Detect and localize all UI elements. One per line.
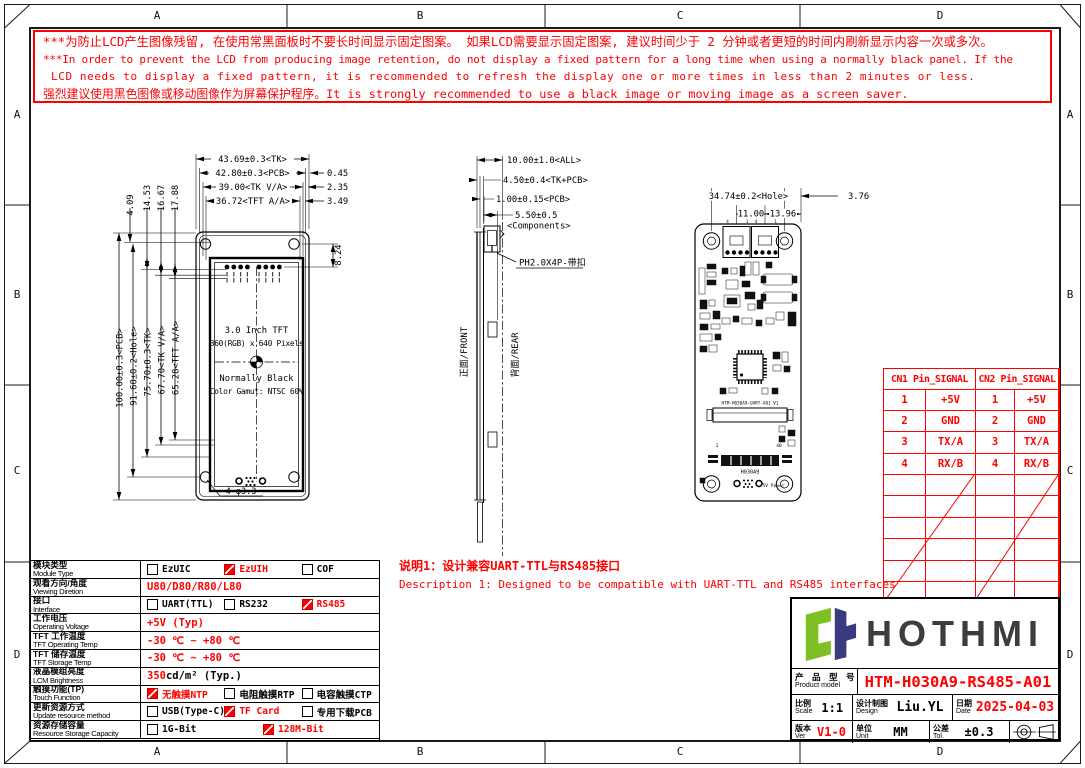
pin-table-cell	[1015, 518, 1059, 540]
zone-col-c-top: C	[670, 9, 690, 22]
checkbox-label: 1G-Bit	[162, 724, 196, 735]
pin-table-cell	[884, 539, 926, 561]
pin-table-cell: 2	[884, 411, 926, 432]
pin-table-cell	[1015, 561, 1059, 583]
pcb-silkscreen-label: HTM-H030A9-UART-A01 V1	[722, 401, 779, 407]
connector-type-label: PH2.0X4P-带扣	[519, 257, 586, 269]
product-label-en: Product model	[795, 682, 858, 690]
checkbox-label: EzUIH	[239, 564, 268, 575]
checkbox-label: 无触摸NTP	[162, 687, 208, 701]
zone-col-d-bottom: D	[930, 745, 950, 758]
dim-hole-span: 34.74±0.2<Hole>	[709, 192, 788, 202]
spec-row-value: EzUICEzUIHCOF	[141, 561, 379, 579]
spec-row-label: 接口Interface	[31, 597, 141, 615]
spec-row-value: 无触摸NTP电阻触摸RTP电容触摸CTP	[141, 686, 379, 704]
pin-table-cell: RX/B	[1015, 454, 1059, 475]
checkbox-checked-icon	[263, 724, 274, 735]
value-red-part: 350	[147, 670, 166, 682]
screen-mode-label: Normally Black	[219, 374, 294, 384]
zone-row-b-left: B	[7, 288, 27, 301]
scale-label-cn: 比例	[795, 699, 813, 708]
dim-small-409: 4.09	[126, 194, 136, 215]
date-value: 2025-04-03	[976, 700, 1054, 715]
checkbox-option: 电容触摸CTP	[302, 687, 379, 701]
warning-line-mixed: 强烈建议使用黑色图像或移动图像作为屏幕保护程序。It is strongly r…	[43, 85, 1042, 103]
zone-row-c-right: C	[1060, 464, 1080, 477]
spec-row-value: 1G-Bit128M-Bit	[141, 721, 379, 739]
pin-table-cell: 2	[976, 411, 1015, 432]
pin4-mark2: 4	[755, 219, 758, 224]
tol-label-cn: 公差	[933, 724, 949, 733]
checkbox-label: 128M-Bit	[278, 724, 324, 735]
pin-table-cell: TX/A	[1015, 432, 1059, 453]
tolerance-value: ±0.3	[965, 725, 994, 739]
note-en: Description 1: Designed to be compatible…	[399, 577, 896, 592]
zone-row-b-right: B	[1060, 288, 1080, 301]
pin-table-cell	[926, 539, 976, 561]
warning-line-en-1: ***In order to prevent the LCD from prod…	[43, 51, 1042, 68]
dim-hole-height: 91.60±0.2<Hole>	[130, 326, 140, 405]
pin-table-cell: RX/B	[926, 454, 976, 475]
checkbox-checked-icon	[302, 599, 313, 610]
zone-row-d-right: D	[1060, 648, 1080, 661]
zone-col-d-top: D	[930, 9, 950, 22]
rear-side-label: 背面/REAR	[509, 332, 521, 378]
pin-table-header: CN1 Pin_SIGNAL	[884, 369, 976, 390]
unit-value: MM	[893, 725, 907, 739]
checkbox-checked-icon	[224, 564, 235, 575]
dim-components-tag: <Components>	[507, 222, 571, 232]
pin-table-cell	[884, 496, 926, 518]
pin1-mark2: 1	[774, 219, 777, 224]
checkbox-option: COF	[302, 564, 379, 575]
rear-bottom-connector	[734, 480, 762, 489]
fpc-pin1-label: 1	[716, 443, 719, 449]
dim-components-thickness: 5.50±0.5	[515, 211, 557, 221]
dim-offset-045: 0.45	[327, 169, 348, 179]
dim-offset-235: 2.35	[327, 183, 348, 193]
pin4-mark: 4	[726, 219, 729, 224]
dim-pcb-width: 42.80±0.3<PCB>	[215, 169, 289, 179]
scale-label-en: Scale	[795, 708, 813, 716]
zone-col-a-bottom: A	[147, 745, 167, 758]
checkbox-option: 电阻触摸RTP	[224, 687, 301, 701]
pin-table-cell	[976, 496, 1015, 518]
checkbox-option: 专用下载PCB	[302, 705, 379, 719]
product-label-cn: 产 品 型 号	[795, 673, 858, 682]
dim-aa-width: 36.72<TFT A/A>	[216, 197, 290, 207]
checkbox-label: RS485	[317, 599, 346, 610]
checkbox-unchecked-icon	[147, 706, 158, 717]
pin-table-cell: +5V	[926, 390, 976, 411]
product-model-value: HTM-H030A9-RS485-A01	[865, 673, 1052, 691]
pad-bar	[708, 455, 792, 466]
pin-table-cell	[976, 539, 1015, 561]
pin-table-cell	[926, 561, 976, 583]
checkbox-label: RS232	[239, 599, 268, 610]
spec-row-value: -30 ℃ ~ +80 ℃	[141, 632, 379, 650]
ver-unit-tol-row: 版本 Ver V1-0 单位 Unit MM 公差 Tol. ±0.3	[792, 721, 1058, 743]
spec-row-label: TFT 工作温度TFT Operating Temp	[31, 632, 141, 650]
dim-all-thickness: 10.00±1.0<ALL>	[507, 156, 581, 166]
center-mark-icon	[251, 356, 263, 368]
note-cn: 说明1：设计兼容UART-TTL与RS485接口	[399, 559, 896, 574]
lcd-retention-warning: ***为防止LCD产生图像残留, 在使用常黑面板时不要长时间显示固定图案。 如果…	[33, 30, 1052, 103]
spec-row-value: 350 cd/m² (Typ.)	[141, 668, 379, 686]
dim-aa-height: 65.28<TFT A/A>	[172, 321, 182, 395]
spec-row-label: TFT 储存温度TFT Storage Temp	[31, 650, 141, 668]
front-bottom-connector	[236, 477, 266, 486]
pin-table-cell	[926, 475, 976, 497]
screen-gamut-label: Color Gamut: NTSC 60%	[210, 387, 304, 396]
dim-824: 8.24	[334, 244, 344, 265]
pin-table-cell	[926, 518, 976, 540]
checkbox-unchecked-icon	[224, 688, 235, 699]
pin-table-cell: 1	[976, 390, 1015, 411]
qfp-chip	[735, 352, 765, 382]
pin-table-cell	[926, 496, 976, 518]
pcb-code-label: H030A9	[741, 470, 760, 476]
warning-line-cn-1: ***为防止LCD产生图像残留, 在使用常黑面板时不要长时间显示固定图案。 如果…	[43, 34, 1042, 51]
dim-tk-height: 75.70±0.3<TK>	[144, 328, 154, 397]
checkbox-label: TF Card	[239, 706, 279, 717]
rear-view: 4 1 4 1	[695, 188, 869, 501]
spec-row-value: USB(Type-C)TF Card专用下载PCB	[141, 703, 379, 721]
pin-table-cell: 3	[884, 432, 926, 453]
spec-table: 模块类型Module TypeEzUICEzUIHCOF观看方向/角度Viewi…	[30, 560, 380, 741]
pin-table-cell	[1015, 539, 1059, 561]
tol-label-en: Tol.	[933, 733, 949, 741]
dim-va-height: 67.70<TK V/A>	[158, 326, 168, 395]
zone-col-b-bottom: B	[410, 745, 430, 758]
screen-size-label: 3.0 Inch TFT	[225, 326, 289, 336]
screen-resolution-label: 360(RGB) x 640 Pixels	[210, 339, 303, 348]
checkbox-unchecked-icon	[302, 688, 313, 699]
pin-table-cell	[976, 561, 1015, 583]
pin-table-cell: TX/A	[926, 432, 976, 453]
spec-row-value: -30 ℃ ~ +80 ℃	[141, 650, 379, 668]
spec-row-label: 观看方向/角度Viewing Diretion	[31, 579, 141, 597]
checkbox-label: EzUIC	[162, 564, 191, 575]
checkbox-option: 无触摸NTP	[141, 687, 224, 701]
pin-table-cell	[976, 475, 1015, 497]
dim-va-width: 39.00<TK V/A>	[219, 183, 288, 193]
front-view: 3.0 Inch TFT 360(RGB) x 640 Pixels Norma…	[113, 154, 348, 500]
design-label-en: Design	[856, 708, 888, 716]
power-silkscreen-label: 5V Power	[763, 483, 785, 489]
dim-1396: 13.96	[770, 210, 796, 220]
checkbox-option: USB(Type-C)	[141, 706, 224, 717]
spec-row-value: +5V (Typ)	[141, 614, 379, 632]
ver-label-cn: 版本	[795, 724, 811, 733]
projection-symbol-icon	[1010, 722, 1058, 742]
warning-line-en-2: LCD needs to display a fixed pattern, it…	[43, 68, 1042, 85]
unit-label-en: Unit	[856, 733, 872, 741]
zone-row-d-left: D	[7, 648, 27, 661]
pin-table-cell: GND	[926, 411, 976, 432]
checkbox-label: 电容触摸CTP	[317, 687, 372, 701]
hothmi-logo-icon	[798, 605, 860, 663]
zone-row-a-right: A	[1060, 108, 1080, 121]
checkbox-option: RS485	[302, 599, 379, 610]
designer-name: Liu.YL	[897, 700, 944, 715]
pin-table-cell	[884, 561, 926, 583]
unit-label-cn: 单位	[856, 724, 872, 733]
checkbox-label: 专用下载PCB	[317, 705, 372, 719]
dim-pcb-height: 100.00±0.3<PCB>	[116, 328, 126, 407]
pin-table-cell	[976, 518, 1015, 540]
dim-pcb-thickness: 1.00±0.15<PCB>	[496, 195, 570, 205]
dim-376: 3.76	[848, 192, 869, 202]
checkbox-label: 电阻触摸RTP	[239, 687, 294, 701]
checkbox-unchecked-icon	[147, 724, 158, 735]
spec-row-label: 更新资源方式Update resource method	[31, 703, 141, 721]
checkbox-option: EzUIH	[224, 564, 301, 575]
checkbox-checked-icon	[224, 706, 235, 717]
zone-row-a-left: A	[7, 108, 27, 121]
product-model-row: 产 品 型 号 Product model HTM-H030A9-RS485-A…	[792, 669, 1058, 695]
checkbox-unchecked-icon	[147, 599, 158, 610]
title-block: HOTHMI 产 品 型 号 Product model HTM-H030A9-…	[790, 597, 1060, 741]
checkbox-label: COF	[317, 564, 334, 575]
checkbox-checked-icon	[147, 688, 158, 699]
pin-table-cell: 4	[976, 454, 1015, 475]
checkbox-unchecked-icon	[224, 599, 235, 610]
pin-table-cell: 1	[884, 390, 926, 411]
scale-value: 1:1	[821, 701, 843, 715]
pin-table-header: CN2 Pin_SIGNAL	[976, 369, 1059, 390]
pin-table-cell: 3	[976, 432, 1015, 453]
dim-small-1788: 17.88	[171, 185, 181, 211]
scale-design-date-row: 比例 Scale 1:1 设计制图 Design Liu.YL 日期 Date …	[792, 695, 1058, 721]
checkbox-unchecked-icon	[147, 564, 158, 575]
dim-offset-349: 3.49	[327, 197, 348, 207]
pin-table-cell	[1015, 475, 1059, 497]
pin-signal-table: CN1 Pin_SIGNALCN2 Pin_SIGNAL1+5V1+5V2GND…	[883, 368, 1060, 604]
design-label-cn: 设计制图	[856, 699, 888, 708]
date-label-cn: 日期	[956, 699, 972, 708]
design-notes: 说明1：设计兼容UART-TTL与RS485接口 Description 1: …	[399, 559, 896, 592]
spec-row-label: 液晶模组亮度LCM Brightness	[31, 668, 141, 686]
hole-dimension-label: 4-φ3.3	[226, 487, 257, 497]
checkbox-unchecked-icon	[302, 706, 313, 717]
ver-label-en: Ver	[795, 733, 811, 741]
checkbox-option: TF Card	[224, 706, 301, 717]
zone-col-a-top: A	[147, 9, 167, 22]
pin-table-cell: +5V	[1015, 390, 1059, 411]
spec-row-label: 模块类型Module Type	[31, 561, 141, 579]
pin-table-cell	[884, 475, 926, 497]
zone-col-b-top: B	[410, 9, 430, 22]
zone-row-c-left: C	[7, 464, 27, 477]
checkbox-option: 1G-Bit	[141, 724, 263, 735]
side-view: 10.00±1.0<ALL> 4.50±0.4<TK+PCB> 1.00±0.1…	[459, 156, 588, 556]
pin-table-cell: GND	[1015, 411, 1059, 432]
checkbox-option: EzUIC	[141, 564, 224, 575]
brand-wordmark: HOTHMI	[866, 613, 1044, 655]
checkbox-label: UART(TTL)	[162, 599, 213, 610]
dim-tk-width: 43.69±0.3<TK>	[218, 155, 287, 165]
pin-table-cell: 4	[884, 454, 926, 475]
pin1-mark: 1	[746, 219, 749, 224]
date-label-en: Date	[956, 708, 972, 716]
dim-small-1667: 16.67	[157, 185, 167, 211]
pin-table-cell	[884, 518, 926, 540]
checkbox-label: USB(Type-C)	[162, 706, 225, 717]
checkbox-option: RS232	[224, 599, 301, 610]
checkbox-option: 128M-Bit	[263, 724, 379, 735]
checkbox-option: UART(TTL)	[141, 599, 224, 610]
logo-row: HOTHMI	[792, 599, 1058, 669]
spec-row-value: UART(TTL)RS232RS485	[141, 597, 379, 615]
dim-tkpcb-thickness: 4.50±0.4<TK+PCB>	[503, 176, 588, 186]
spec-row-value: U80/D80/R80/L80	[141, 579, 379, 597]
zone-col-c-bottom: C	[670, 745, 690, 758]
version-value: V1-0	[817, 725, 846, 739]
dim-1100: 11.00	[738, 210, 764, 220]
spec-row-label: 资源存储容量Resource Storage Capacity	[31, 721, 141, 739]
fpc-pin40-label: 40	[776, 443, 782, 449]
checkbox-unchecked-icon	[302, 564, 313, 575]
value-black-part: cd/m² (Typ.)	[166, 670, 242, 682]
spec-row-label: 触摸功能(TP)Touch Function	[31, 686, 141, 704]
dim-small-1453: 14.53	[143, 185, 153, 211]
spec-row-label: 工作电压Operating Voltage	[31, 614, 141, 632]
pin-table-cell	[1015, 496, 1059, 518]
front-side-label: 正面/FRONT	[459, 326, 470, 377]
front-pins	[225, 265, 282, 270]
